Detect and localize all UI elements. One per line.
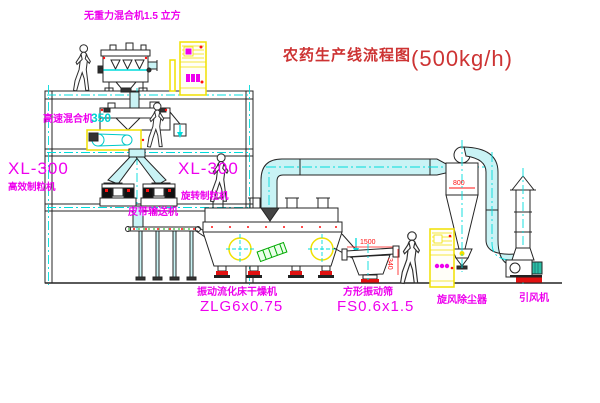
square-sieve-label: 方形振动筛: [343, 288, 393, 298]
belt-conveyor-label: 皮带输送机: [128, 208, 178, 218]
diagram-canvas: 无重力混合机1.5 立方 农药生产线流程图(500kg/h) 高速混合机350 …: [0, 0, 600, 403]
person-figure: [401, 232, 420, 284]
granulator-units: [100, 184, 177, 206]
gravity-free-mixer: [98, 43, 157, 110]
high-speed-mixer: [87, 102, 186, 150]
title-capacity: (500kg/h): [411, 46, 513, 71]
sieve-height-dimension: 340: [386, 258, 393, 270]
cyclone-width-dimension: 800: [453, 180, 465, 187]
granulator-left-model-label: XL-300: [8, 160, 69, 177]
granulator-left-name-label: 高效制粒机: [8, 183, 56, 193]
granulator-right-model-label: XL-300: [178, 160, 239, 177]
diagram-title: 农药生产线流程图(500kg/h): [283, 48, 513, 70]
person-figure: [74, 45, 91, 91]
high-speed-mixer-label: 高速混合机350: [43, 112, 111, 125]
fluid-bed-dryer: [203, 198, 359, 278]
gravity-free-mixer-label: 无重力混合机1.5 立方: [84, 12, 181, 22]
control-cabinet-top: [170, 42, 206, 95]
induced-draft-fan: [506, 248, 542, 283]
control-cabinet-right: [430, 229, 454, 287]
granulator-right-name-label: 旋转制粒机: [181, 192, 229, 202]
square-sieve-model-label: FS0.6x1.5: [337, 299, 414, 314]
high-speed-mixer-name: 高速混合机: [43, 114, 93, 125]
sieve-length-dimension: 1500: [360, 239, 376, 246]
high-speed-mixer-model: 350: [91, 111, 111, 125]
fan-label: 引风机: [519, 294, 549, 304]
fluid-bed-dryer-model-label: ZLG6x0.75: [200, 299, 283, 314]
fluid-bed-dryer-label: 振动流化床干燥机: [197, 288, 277, 298]
title-chinese: 农药生产线流程图: [283, 47, 411, 64]
cyclone-label: 旋风除尘器: [437, 296, 487, 306]
